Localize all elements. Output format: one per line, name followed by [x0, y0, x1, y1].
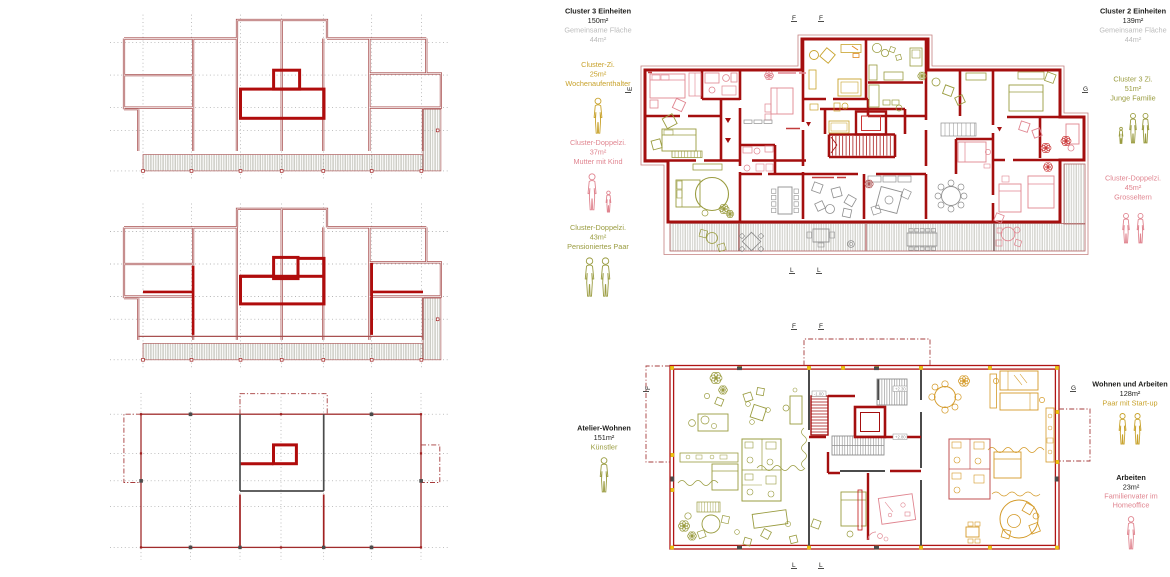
svg-text:43m²: 43m² [590, 233, 607, 242]
svg-text:Arbeiten: Arbeiten [1116, 473, 1146, 482]
svg-text:Cluster-Doppelzi.: Cluster-Doppelzi. [1105, 174, 1161, 183]
svg-text:Cluster-Zi.: Cluster-Zi. [581, 60, 615, 69]
svg-text:F: F [792, 323, 796, 330]
svg-text:F: F [819, 15, 823, 22]
svg-text:+2.80: +2.80 [895, 434, 906, 439]
svg-text:Cluster 3 Zi.: Cluster 3 Zi. [1113, 75, 1152, 84]
svg-text:Wochenaufenthalter: Wochenaufenthalter [565, 79, 631, 88]
svg-text:F: F [792, 15, 796, 22]
svg-text:45m²: 45m² [1125, 183, 1142, 192]
svg-text:Cluster-Doppelzi.: Cluster-Doppelzi. [570, 138, 626, 147]
svg-text:Homeoffice: Homeoffice [1113, 501, 1150, 510]
svg-text:23m²: 23m² [1123, 483, 1140, 492]
svg-text:Paar mit Start-up: Paar mit Start-up [1102, 399, 1157, 408]
svg-text:-1.00: -1.00 [814, 391, 824, 396]
svg-text:139m²: 139m² [1123, 16, 1144, 25]
svg-text:Grosseltern: Grosseltern [1114, 193, 1152, 202]
svg-text:Künstler: Künstler [591, 443, 618, 452]
svg-text:37m²: 37m² [590, 148, 607, 157]
svg-text:Gemeinsame Fläche: Gemeinsame Fläche [564, 26, 631, 35]
svg-text:G: G [1071, 385, 1076, 392]
svg-text:Cluster 2 Einheiten: Cluster 2 Einheiten [1100, 7, 1166, 16]
svg-text:L: L [819, 562, 823, 569]
svg-text:Wohnen und Arbeiten: Wohnen und Arbeiten [1092, 380, 1167, 389]
svg-text:Pensioniertes Paar: Pensioniertes Paar [567, 242, 629, 251]
svg-text:Familienvater im: Familienvater im [1104, 492, 1158, 501]
svg-text:150m²: 150m² [588, 16, 609, 25]
svg-text:Cluster-Doppelzi.: Cluster-Doppelzi. [570, 223, 626, 232]
svg-text:F: F [819, 323, 823, 330]
svg-text:L: L [790, 267, 794, 274]
svg-text:Junge Familie: Junge Familie [1110, 94, 1155, 103]
svg-text:Mutter mit Kind: Mutter mit Kind [573, 157, 622, 166]
svg-text:44m²: 44m² [1125, 35, 1142, 44]
svg-text:+2.30: +2.30 [895, 386, 906, 391]
svg-text:Cluster 3 Einheiten: Cluster 3 Einheiten [565, 7, 631, 16]
svg-text:151m²: 151m² [594, 433, 615, 442]
svg-text:Gemeinsame Fläche: Gemeinsame Fläche [1099, 26, 1166, 35]
svg-text:44m²: 44m² [590, 35, 607, 44]
svg-text:Atelier-Wohnen: Atelier-Wohnen [577, 424, 631, 433]
svg-text:G: G [1083, 86, 1088, 93]
svg-text:25m²: 25m² [590, 70, 607, 79]
svg-text:F: F [645, 386, 652, 390]
svg-text:51m²: 51m² [1125, 84, 1142, 93]
svg-text:128m²: 128m² [1120, 389, 1141, 398]
svg-text:L: L [792, 562, 796, 569]
svg-text:L: L [817, 267, 821, 274]
